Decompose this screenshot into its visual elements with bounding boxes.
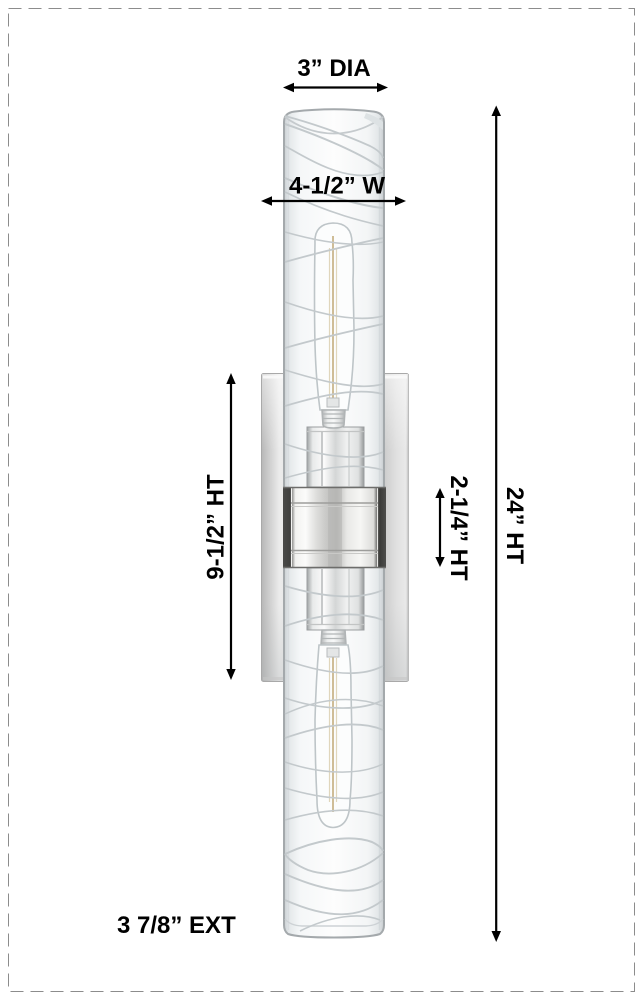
svg-text:2-1/4” HT: 2-1/4” HT bbox=[445, 475, 472, 581]
svg-text:3” DIA: 3” DIA bbox=[297, 55, 370, 82]
svg-text:9-1/2” HT: 9-1/2” HT bbox=[203, 474, 230, 580]
svg-text:24” HT: 24” HT bbox=[501, 487, 528, 565]
svg-text:4-1/2” W: 4-1/2” W bbox=[289, 173, 385, 200]
svg-text:3 7/8” EXT: 3 7/8” EXT bbox=[117, 912, 236, 939]
